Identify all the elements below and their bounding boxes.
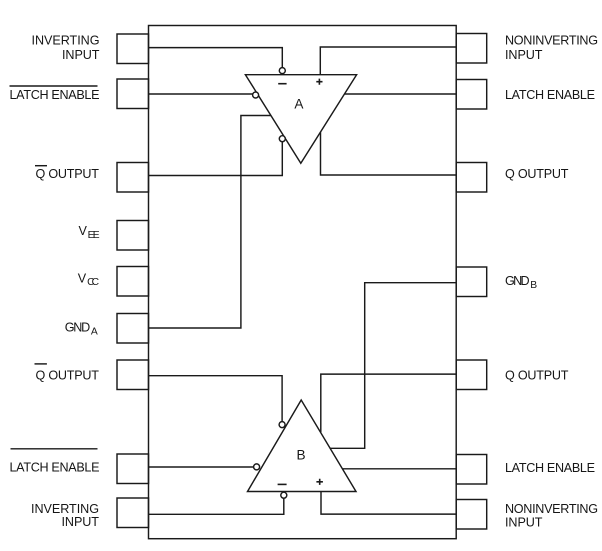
svg-text:Q OUTPUT: Q OUTPUT bbox=[505, 369, 569, 383]
svg-text:INVERTING: INVERTING bbox=[31, 502, 99, 516]
svg-text:Q OUTPUT: Q OUTPUT bbox=[36, 167, 100, 181]
svg-text:V: V bbox=[79, 224, 88, 238]
svg-text:LATCH ENABLE: LATCH ENABLE bbox=[10, 461, 100, 475]
svg-text:Q OUTPUT: Q OUTPUT bbox=[36, 369, 100, 383]
svg-text:CC: CC bbox=[87, 277, 100, 288]
svg-text:INVERTING: INVERTING bbox=[32, 34, 100, 48]
svg-text:LATCH ENABLE: LATCH ENABLE bbox=[10, 88, 100, 102]
svg-text:Q OUTPUT: Q OUTPUT bbox=[505, 167, 569, 181]
svg-text:A: A bbox=[91, 327, 98, 338]
svg-text:LATCH ENABLE: LATCH ENABLE bbox=[505, 88, 595, 102]
svg-text:INPUT: INPUT bbox=[62, 515, 100, 529]
svg-text:A: A bbox=[294, 97, 304, 112]
svg-text:GND: GND bbox=[505, 274, 530, 288]
svg-text:NONINVERTING: NONINVERTING bbox=[505, 34, 598, 48]
svg-text:B: B bbox=[530, 280, 537, 291]
svg-text:B: B bbox=[296, 448, 305, 463]
svg-text:INPUT: INPUT bbox=[505, 515, 543, 529]
svg-text:NONINVERTING: NONINVERTING bbox=[505, 502, 598, 516]
svg-text:EE: EE bbox=[88, 230, 100, 241]
svg-text:INPUT: INPUT bbox=[62, 48, 100, 62]
svg-text:INPUT: INPUT bbox=[505, 48, 543, 62]
svg-text:LATCH ENABLE: LATCH ENABLE bbox=[505, 461, 595, 475]
svg-text:V: V bbox=[78, 271, 87, 285]
svg-text:GND: GND bbox=[65, 321, 90, 335]
